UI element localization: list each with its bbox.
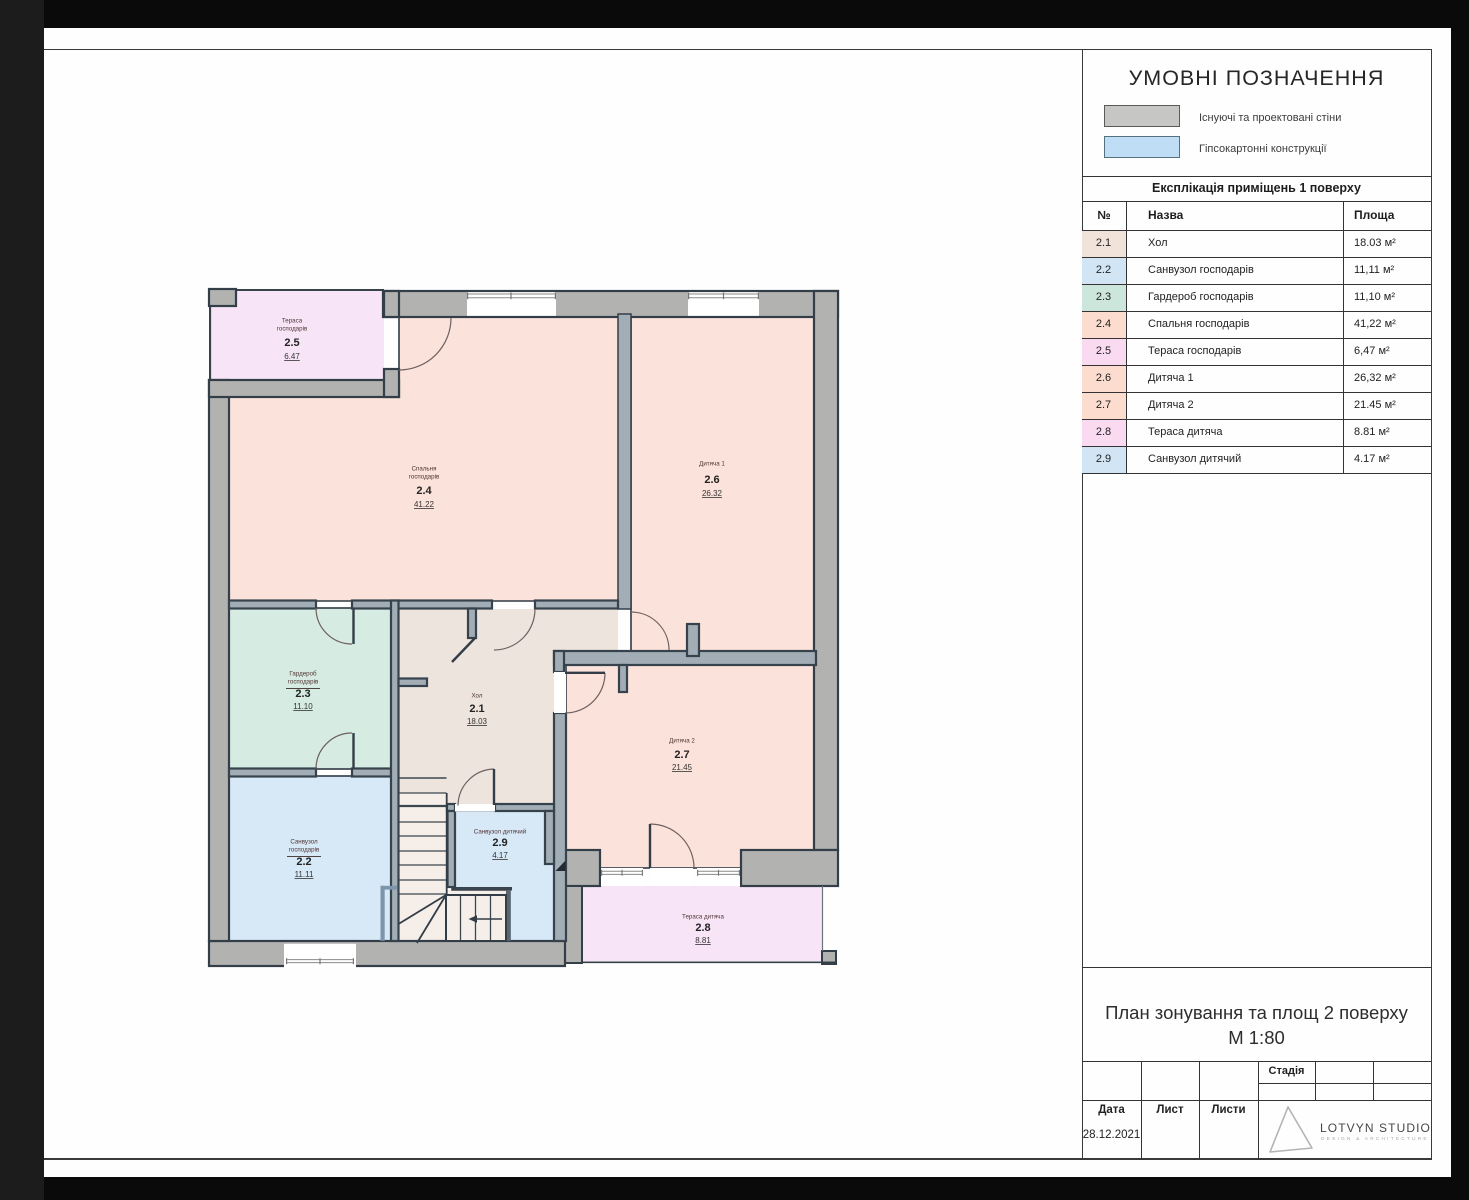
svg-text:8.81: 8.81 bbox=[695, 936, 711, 945]
svg-text:2.2: 2.2 bbox=[296, 856, 311, 868]
svg-text:господарів: господарів bbox=[277, 326, 308, 333]
svg-text:2.5: 2.5 bbox=[284, 337, 299, 349]
svg-text:2.3: 2.3 bbox=[295, 688, 310, 700]
svg-text:2.4: 2.4 bbox=[416, 485, 432, 497]
svg-text:Тераса дитяча: Тераса дитяча bbox=[682, 914, 724, 921]
svg-text:2.1: 2.1 bbox=[469, 703, 484, 715]
svg-text:Тераса: Тераса bbox=[282, 318, 303, 325]
svg-text:41.22: 41.22 bbox=[414, 500, 435, 509]
svg-text:11.10: 11.10 bbox=[293, 702, 313, 711]
svg-text:18.03: 18.03 bbox=[467, 717, 488, 726]
svg-text:26.32: 26.32 bbox=[702, 489, 723, 498]
svg-text:Хол: Хол bbox=[472, 693, 483, 700]
svg-text:21.45: 21.45 bbox=[672, 763, 693, 772]
svg-text:6.47: 6.47 bbox=[284, 352, 300, 361]
svg-text:11.11: 11.11 bbox=[295, 870, 314, 879]
svg-text:2.9: 2.9 bbox=[492, 837, 507, 849]
svg-text:господарів: господарів bbox=[288, 679, 319, 686]
svg-text:Дитяча 2: Дитяча 2 bbox=[669, 738, 695, 745]
svg-text:господарів: господарів bbox=[289, 847, 320, 854]
svg-text:4.17: 4.17 bbox=[492, 851, 508, 860]
svg-text:2.6: 2.6 bbox=[704, 474, 719, 486]
svg-text:Санвузол дитячий: Санвузол дитячий bbox=[474, 829, 527, 836]
svg-text:господарів: господарів bbox=[409, 474, 440, 481]
svg-text:Дитяча 1: Дитяча 1 bbox=[699, 461, 725, 468]
svg-text:Гардероб: Гардероб bbox=[289, 671, 317, 678]
svg-text:2.7: 2.7 bbox=[674, 749, 689, 761]
svg-text:Спальня: Спальня bbox=[412, 466, 437, 473]
svg-text:2.8: 2.8 bbox=[695, 922, 710, 934]
svg-text:Санвузол: Санвузол bbox=[290, 839, 318, 846]
